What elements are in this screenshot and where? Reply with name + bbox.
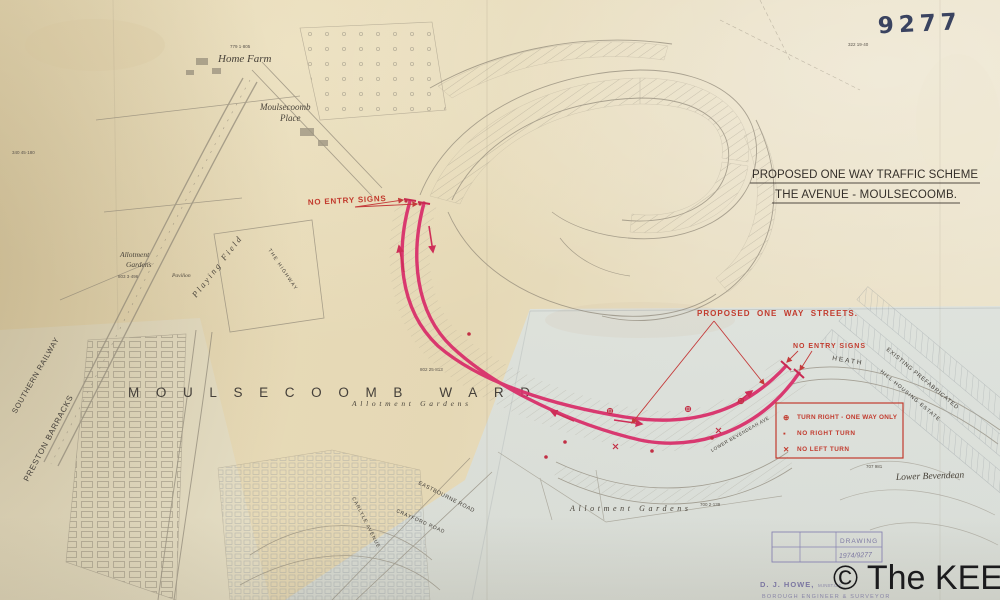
reference-number: 9277	[877, 9, 962, 39]
label-eastbourne-road: EASTBOURNE ROAD	[417, 480, 475, 514]
label-lower-bevendean: Lower Bevendean	[895, 471, 965, 483]
label-ward: MOULSECOOMB WARD	[128, 385, 530, 400]
label-playing-field: Playing Field	[189, 234, 244, 300]
parcel-number: 803 3·496	[118, 274, 139, 279]
title-line-2: THE AVENUE - MOULSECOOMB.	[775, 189, 957, 201]
label-one-way-streets: PROPOSED ONE WAY STREETS.	[697, 309, 857, 318]
legend-symbol-turn-right: ⊕	[783, 413, 790, 422]
title-block: PROPOSED ONE WAY TRAFFIC SCHEME THE AVEN…	[750, 169, 980, 203]
legend-label-no-left-turn: NO LEFT TURN	[797, 446, 849, 453]
parcel-number: 340 45·180	[12, 150, 35, 155]
stamp-title: DRAWING	[840, 538, 878, 545]
legend-label-no-right-turn: NO RIGHT TURN	[797, 430, 855, 437]
scheme-legend: ⊕ TURN RIGHT - ONE WAY ONLY ▪ NO RIGHT T…	[776, 403, 903, 458]
label-moulsecoomb-place-1: Moulsecoomb	[259, 102, 311, 112]
label-the-highway: THE HIGHWAY	[266, 248, 298, 292]
keep-watermark: © The KEEP	[833, 559, 1000, 597]
label-moulsecoomb-place-2: Place	[279, 113, 301, 123]
scanned-map: Home Farm Moulsecoomb Place MOULSECOOMB …	[0, 0, 1000, 600]
label-southern-railway: SOUTHERN RAILWAY	[10, 336, 61, 415]
title-line-1: PROPOSED ONE WAY TRAFFIC SCHEME	[752, 169, 978, 181]
legend-label-turn-right: TURN RIGHT - ONE WAY ONLY	[797, 414, 898, 421]
legend-symbol-no-left-turn: ✕	[783, 445, 789, 454]
parcel-number: 779 1·805	[230, 44, 251, 49]
legend-symbol-no-right-turn: ▪	[783, 429, 786, 438]
label-pavilion: Pavilion	[171, 273, 191, 279]
label-preston-barracks: PRESTON BARRACKS	[22, 394, 75, 483]
label-allotment-bottom: Allotment Gardens	[569, 504, 688, 513]
label-allotment-left-1: Allotment	[119, 250, 150, 259]
parcel-number: 322 19·40	[848, 42, 869, 47]
parcel-number: 707 981	[866, 464, 883, 469]
engineer-name: D. J. HOWE,	[760, 580, 814, 589]
label-allotment-left-2: Gardens	[126, 260, 152, 269]
label-no-entry-left: NO ENTRY SIGNS	[308, 194, 387, 207]
parcel-number: 802 25·813	[420, 367, 443, 372]
base-map-linework	[44, 0, 1000, 600]
label-no-entry-right: NO ENTRY SIGNS	[793, 343, 865, 350]
label-home-farm: Home Farm	[217, 53, 272, 65]
parcel-number: 700 2·139	[700, 502, 721, 507]
label-allotment-mid: Allotment Gardens	[351, 399, 468, 408]
map-artwork: Home Farm Moulsecoomb Place MOULSECOOMB …	[0, 0, 1000, 600]
